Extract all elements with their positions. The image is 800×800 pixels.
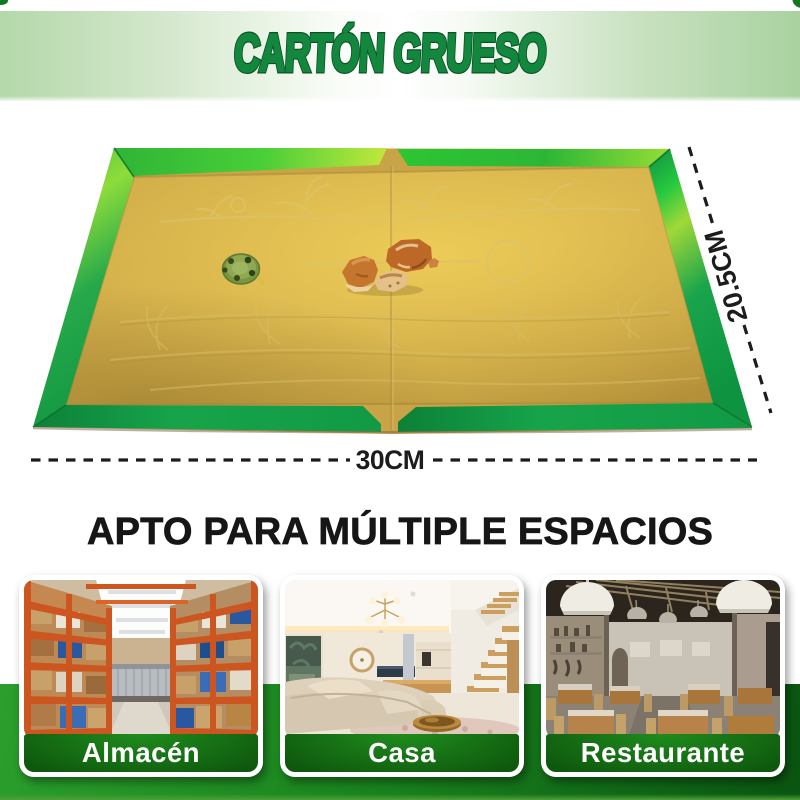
svg-text:30CM: 30CM <box>356 445 425 475</box>
